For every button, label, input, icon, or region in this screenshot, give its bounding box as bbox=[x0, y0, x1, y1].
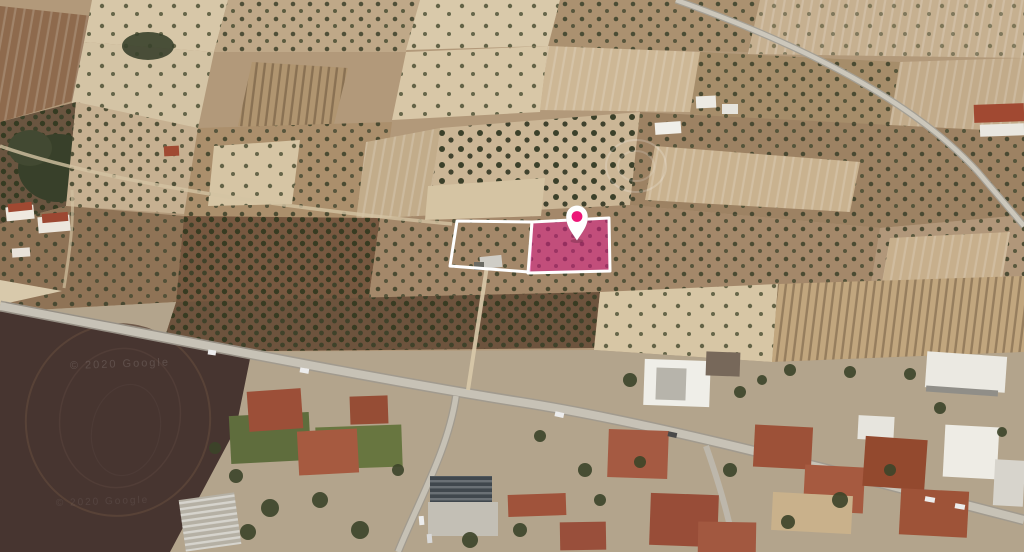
satellite-map-canvas[interactable]: © 2020 Google © 2020 Google bbox=[0, 0, 1024, 552]
pin-dot bbox=[572, 211, 583, 222]
